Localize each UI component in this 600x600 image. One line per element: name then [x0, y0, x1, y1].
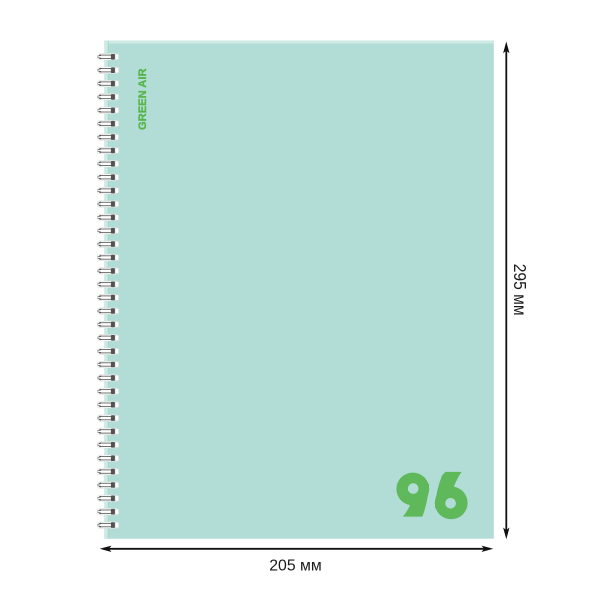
svg-text:295 мм: 295 мм [510, 264, 530, 316]
svg-text:205 мм: 205 мм [269, 557, 322, 574]
svg-text:GREEN AIR: GREEN AIR [137, 69, 149, 131]
